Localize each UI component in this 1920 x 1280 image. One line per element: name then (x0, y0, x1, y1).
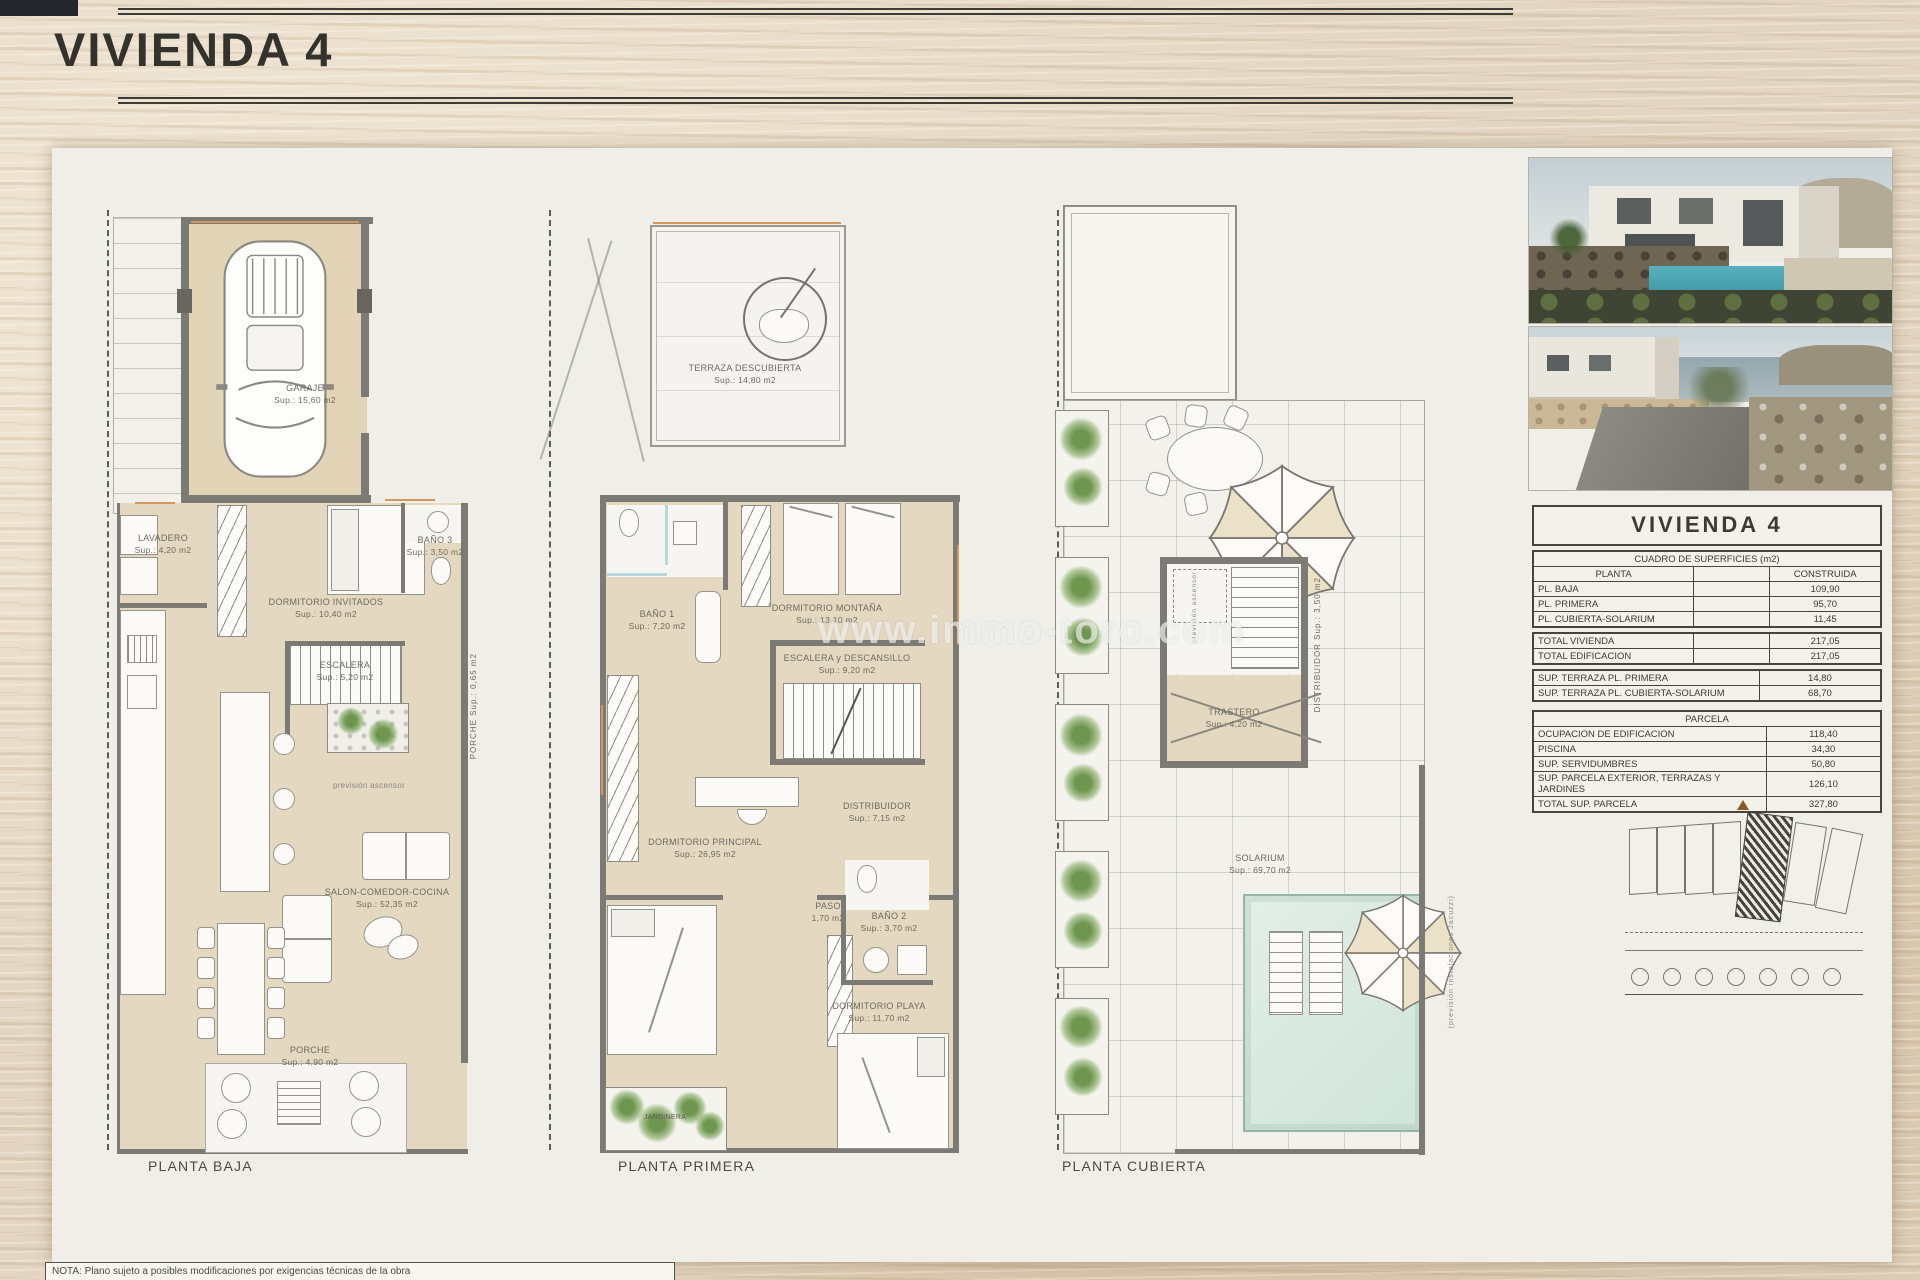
row-label: OCUPACION DE EDIFICACION (1534, 728, 1766, 741)
toilet (619, 509, 639, 537)
parcel-boundary-dashed (549, 210, 551, 1150)
plant (1059, 713, 1103, 757)
sun-lounger (1269, 931, 1303, 1015)
car-top-view (205, 233, 345, 485)
wardrobe (217, 505, 247, 637)
wall-segment (461, 503, 468, 1063)
room-area: Sup.: 11,70 m2 (832, 1013, 925, 1024)
wall-segment (770, 640, 776, 765)
dining-chair (267, 987, 285, 1009)
wall-segment (600, 495, 606, 1153)
dining-chair (197, 957, 215, 979)
staircase (783, 683, 921, 759)
shower-glass (665, 505, 668, 565)
bar-stool (273, 788, 295, 810)
bed-pillow (611, 909, 655, 937)
note-box: NOTA: Plano sujeto a posibles modificaci… (45, 1262, 675, 1280)
roof-slope-line (587, 238, 645, 462)
wall-segment (1419, 765, 1425, 1155)
roof-void-outline (1063, 205, 1237, 401)
room-area: Sup.: 10,40 m2 (269, 609, 384, 620)
table-cell-empty (1693, 597, 1769, 611)
room-area: Sup.: 3,50 m2 (1313, 577, 1322, 640)
wall-segment (845, 980, 933, 985)
site-base-line (1625, 994, 1863, 995)
wardrobe (607, 675, 639, 862)
room-area: Sup.: 7,15 m2 (843, 813, 911, 824)
site-road-line (1625, 950, 1863, 951)
tree-symbol (1727, 968, 1745, 986)
wall-segment (1175, 1149, 1425, 1154)
window-frame (385, 499, 435, 501)
plant (1063, 911, 1103, 951)
room-name: PORCHE (282, 1045, 339, 1057)
room-name: TRASTERO (1206, 707, 1263, 719)
dining-chair (267, 1017, 285, 1039)
bed-pillow (331, 509, 359, 591)
dining-chair (267, 927, 285, 949)
sun-lounger (1309, 931, 1343, 1015)
toilet (857, 865, 877, 893)
room-label-paso: PASO 1,70 m2 (812, 901, 845, 924)
table-row: PISCINA 34,30 (1534, 741, 1880, 756)
shower-tray (673, 521, 697, 545)
plot-outline (1657, 825, 1685, 895)
room-label-dormitorio-playa: DORMITORIO PLAYA Sup.: 11,70 m2 (832, 1001, 925, 1024)
room-area: Sup.: 3,50 m2 (407, 547, 464, 558)
sink-basin (427, 511, 449, 533)
wall-segment (181, 495, 371, 503)
wall-segment (117, 603, 207, 608)
plot-outline (1713, 821, 1741, 895)
table-cell-empty (1693, 582, 1769, 596)
room-label-porche-lateral: PORCHE Sup.: 0,65 m2 (469, 653, 479, 759)
driveway-ramp (113, 217, 183, 514)
wall-segment (600, 495, 960, 502)
room-area: Sup.: 69,70 m2 (1229, 865, 1291, 876)
plant (1059, 565, 1103, 609)
toilet (431, 557, 451, 585)
photo-house-window (1547, 355, 1569, 371)
table-cell-empty (1693, 567, 1769, 581)
tree-symbol (1631, 968, 1649, 986)
bar-stool (273, 733, 295, 755)
tree-symbol (1663, 968, 1681, 986)
kitchen-sink (127, 675, 157, 709)
desk (695, 777, 799, 807)
room-area: Sup.: 5,20 m2 (317, 672, 374, 683)
cooktop (127, 635, 157, 663)
room-name: BAÑO 2 (861, 911, 918, 923)
table-cell-empty (1693, 649, 1769, 663)
room-area: Sup.: 9,20 m2 (784, 665, 911, 676)
row-label: TOTAL EDIFICACION (1534, 650, 1693, 663)
laundry-sink (120, 557, 158, 595)
shower-glass (607, 573, 667, 576)
row-value: 126,10 (1766, 772, 1880, 796)
row-label: PISCINA (1534, 743, 1766, 756)
room-area: Sup.: 4,90 m2 (282, 1057, 339, 1068)
room-label-solarium: SOLARIUM Sup.: 69,70 m2 (1229, 853, 1291, 876)
table-row: SUP. SERVIDUMBRES 50,80 (1534, 756, 1880, 771)
plant (337, 707, 365, 735)
caption-planta-cubierta: PLANTA CUBIERTA (1062, 1158, 1206, 1174)
bed-pillow (917, 1037, 945, 1077)
window-frame (135, 502, 175, 504)
table-title-box: VIVIENDA 4 (1532, 505, 1882, 546)
row-label: SUP. TERRAZA PL. PRIMERA (1534, 672, 1759, 685)
room-label-trastero: TRASTERO Sup.: 4,20 m2 (1206, 707, 1263, 730)
room-area: Sup.: 52,35 m2 (325, 899, 450, 910)
table-row: TOTAL EDIFICACION 217,05 (1534, 648, 1880, 663)
room-area: Sup.: 7,20 m2 (629, 621, 686, 632)
table-row: OCUPACION DE EDIFICACION 118,40 (1534, 726, 1880, 741)
parcela-title: PARCELA (1534, 712, 1880, 726)
bar-stool (273, 843, 295, 865)
table-terrazas-box: SUP. TERRAZA PL. PRIMERA 14,80 SUP. TERR… (1532, 669, 1882, 702)
row-label: SUP. TERRAZA PL. CUBIERTA-SOLARIUM (1534, 687, 1759, 700)
room-label-bano1: BAÑO 1 Sup.: 7,20 m2 (629, 609, 686, 632)
room-label-porche: PORCHE Sup.: 4,90 m2 (282, 1045, 339, 1068)
row-value: 68,70 (1759, 686, 1880, 700)
wardrobe (827, 935, 853, 1047)
sink-basin (863, 947, 889, 973)
wall-segment (770, 759, 925, 765)
wall-segment (1160, 761, 1308, 768)
wall-segment (361, 433, 369, 499)
row-label: SUP. SERVIDUMBRES (1534, 758, 1766, 771)
table-row: PL. BAJA 109,90 (1534, 581, 1880, 596)
tree-symbol (1695, 968, 1713, 986)
table-title: VIVIENDA 4 (1534, 507, 1880, 544)
room-area: Sup.: 14,80 m2 (689, 375, 802, 386)
tree-symbol (1823, 968, 1841, 986)
plan-sheet-page: VIVIENDA 4 (0, 0, 1920, 1280)
row-value: 95,70 (1769, 597, 1880, 611)
room-name: SOLARIUM (1229, 853, 1291, 865)
plant (1059, 1005, 1103, 1049)
row-value: 34,30 (1766, 742, 1880, 756)
room-name: PASO (812, 901, 845, 913)
room-name: DISTRIBUIDOR (1313, 643, 1322, 712)
photo-white-houses (1529, 337, 1679, 407)
garage-lintel (191, 221, 359, 223)
row-label: TOTAL VIVIENDA (1534, 635, 1693, 648)
table-subtitle: CUADRO DE SUPERFICIES (m2) (1534, 552, 1880, 566)
wicker-chair (217, 1109, 247, 1139)
room-label-jardinera: JARDINERA (644, 1113, 686, 1122)
wall-segment (1160, 557, 1167, 767)
row-label: SUP. PARCELA EXTERIOR, TERRAZAS Y JARDIN… (1534, 772, 1766, 796)
wall-segment (401, 503, 405, 593)
outdoor-chair (1184, 404, 1209, 429)
table-cell-empty (1693, 634, 1769, 648)
room-area: Sup.: 15,60 m2 (274, 395, 336, 406)
dining-table (217, 923, 265, 1055)
wall-segment (603, 895, 723, 900)
bathtub (695, 591, 721, 663)
kitchen-counter (120, 610, 166, 995)
table-row: SUP. PARCELA EXTERIOR, TERRAZAS Y JARDIN… (1534, 771, 1880, 796)
plant (367, 719, 399, 749)
wall-segment (841, 895, 846, 985)
row-value: 109,90 (1769, 582, 1880, 596)
room-label-salon: SALON-COMEDOR-COCINA Sup.: 52,35 m2 (325, 887, 450, 910)
photo-building-window (1617, 198, 1651, 224)
row-value: 14,80 (1759, 671, 1880, 685)
room-area: 1,70 m2 (812, 913, 845, 924)
room-name: ESCALERA (317, 660, 374, 672)
room-label-bano2: BAÑO 2 Sup.: 3,70 m2 (861, 911, 918, 934)
room-area: Sup.: 3,70 m2 (861, 923, 918, 934)
site-road-line (1625, 932, 1863, 933)
photo-rocky-shore (1749, 397, 1893, 491)
label-prevision-ascensor: previsión ascensor (333, 781, 405, 791)
dining-chair (197, 1017, 215, 1039)
table-row: PL. CUBIERTA-SOLARIUM 11,45 (1534, 611, 1880, 626)
wicker-chair (349, 1071, 379, 1101)
photo-building-window (1679, 198, 1713, 224)
room-label-escalera-descansillo: ESCALERA y DESCANSILLO Sup.: 9,20 m2 (784, 653, 911, 676)
row-value: 118,40 (1766, 727, 1880, 741)
wall-segment (1160, 557, 1308, 564)
plant (1059, 859, 1103, 903)
wall-segment (181, 217, 189, 499)
dining-chair (267, 957, 285, 979)
plot-outline (1685, 823, 1713, 895)
tree-symbol (1759, 968, 1777, 986)
room-name: DORMITORIO INVITADOS (269, 597, 384, 609)
tree-symbol (1791, 968, 1809, 986)
wall-pillar (357, 289, 372, 313)
plot-outline (1629, 827, 1657, 895)
shower-tray (897, 945, 927, 975)
wall-pillar (177, 289, 192, 313)
caption-planta-primera: PLANTA PRIMERA (618, 1158, 755, 1174)
room-label-terraza: TERRAZA DESCUBIERTA Sup.: 14,80 m2 (689, 363, 802, 386)
table-header-row: PLANTA CONSTRUIDA (1534, 566, 1880, 581)
room-name: BAÑO 1 (629, 609, 686, 621)
window-frame (601, 705, 603, 795)
wall-segment (723, 495, 728, 590)
wardrobe (741, 505, 771, 607)
plant (637, 1103, 677, 1143)
floorplan-planta-primera: TERRAZA DESCUBIERTA Sup.: 14,80 m2 BAÑO … (545, 205, 975, 1165)
surface-area-table: VIVIENDA 4 CUADRO DE SUPERFICIES (m2) PL… (1532, 505, 1882, 817)
row-label: PL. BAJA (1534, 583, 1693, 596)
room-area: Sup.: 4,20 m2 (1206, 719, 1263, 730)
site-location-plan (1625, 800, 1865, 1020)
plot-highlight-vivienda4 (1735, 812, 1794, 923)
porch-table (277, 1081, 321, 1125)
room-name: TERRAZA DESCUBIERTA (689, 363, 802, 375)
photo-scrub (1679, 367, 1759, 407)
room-label-escalera: ESCALERA Sup.: 5,20 m2 (317, 660, 374, 683)
title-rule-top (118, 8, 1513, 15)
sofa (362, 832, 450, 880)
row-value: 217,05 (1769, 634, 1880, 648)
col-header-construida: CONSTRUIDA (1769, 567, 1880, 581)
row-label: PL. PRIMERA (1534, 598, 1693, 611)
room-label-lavadero: LAVADERO Sup.: 4,20 m2 (135, 533, 192, 556)
col-header-planta: PLANTA (1534, 568, 1693, 581)
table-cell-empty (1693, 612, 1769, 626)
photo-headland (1779, 345, 1893, 385)
floorplan-planta-baja: GARAJE Sup.: 15,60 m2 LAVADERO Sup.: 4,2… (105, 205, 485, 1165)
room-name: DORMITORIO PLAYA (832, 1001, 925, 1013)
plant (1059, 417, 1103, 461)
wall-segment (285, 641, 405, 646)
room-label-garaje: GARAJE Sup.: 15,60 m2 (274, 383, 336, 406)
row-value: 11,45 (1769, 612, 1880, 626)
table-row: PL. PRIMERA 95,70 (1534, 596, 1880, 611)
room-area: Sup.: 4,20 m2 (135, 545, 192, 556)
parcel-boundary-dashed (107, 210, 109, 1150)
row-value: 217,05 (1769, 649, 1880, 663)
room-name: LAVADERO (135, 533, 192, 545)
dining-chair (197, 987, 215, 1009)
photo-building-window (1743, 200, 1783, 246)
terrace-trim (653, 222, 841, 224)
villa-photo-render (1528, 157, 1893, 324)
table-row: SUP. TERRAZA PL. PRIMERA 14,80 (1534, 671, 1880, 685)
plant (1063, 467, 1103, 507)
table-totales-box: TOTAL VIVIENDA 217,05 TOTAL EDIFICACION … (1532, 632, 1882, 665)
room-name: BAÑO 3 (407, 535, 464, 547)
room-name: GARAJE (274, 383, 336, 395)
kitchen-island (220, 692, 270, 892)
room-name: ESCALERA y DESCANSILLO (784, 653, 911, 665)
photo-palm (1549, 218, 1589, 258)
room-name: SALON-COMEDOR-COCINA (325, 887, 450, 899)
table-row: TOTAL VIVIENDA 217,05 (1534, 634, 1880, 648)
page-title: VIVIENDA 4 (54, 22, 333, 77)
plant (1063, 1057, 1103, 1097)
table-parcela-box: PARCELA OCUPACION DE EDIFICACION 118,40 … (1532, 710, 1882, 813)
title-rule-bottom (118, 97, 1513, 104)
photo-bushes (1529, 290, 1893, 324)
watermark-text: www.immo-toro.com (818, 608, 1246, 653)
photo-house-window (1589, 355, 1611, 371)
room-name: DORMITORIO PRINCIPAL (648, 837, 762, 849)
umbrella-top-view (1343, 893, 1463, 1013)
caption-planta-baja: PLANTA BAJA (148, 1158, 253, 1174)
room-label-distribuidor: DISTRIBUIDOR Sup.: 7,15 m2 (843, 801, 911, 824)
plant (1063, 763, 1103, 803)
room-label-bano3: BAÑO 3 Sup.: 3,50 m2 (407, 535, 464, 558)
room-name: PORCHE (469, 719, 478, 759)
room-name: DISTRIBUIDOR (843, 801, 911, 813)
room-label-distribuidor-cubierta: DISTRIBUIDOR Sup.: 3,50 m2 (1313, 577, 1323, 712)
row-label: PL. CUBIERTA-SOLARIUM (1534, 613, 1693, 626)
floorplan-planta-cubierta: previsión ascensor TRASTERO Sup.: 4,20 m… (1055, 205, 1475, 1165)
table-row: SUP. TERRAZA PL. CUBIERTA-SOLARIUM 68,70 (1534, 685, 1880, 700)
corner-dark-strip (0, 0, 78, 16)
room-area: Sup.: 26,95 m2 (648, 849, 762, 860)
room-area: Sup.: 0,65 m2 (469, 653, 478, 716)
room-label-dormitorio-invitados: DORMITORIO INVITADOS Sup.: 10,40 m2 (269, 597, 384, 620)
table-plantas-box: CUADRO DE SUPERFICIES (m2) PLANTA CONSTR… (1532, 550, 1882, 628)
sofa (282, 895, 332, 983)
wicker-chair (351, 1107, 381, 1137)
dining-chair (197, 927, 215, 949)
row-value: 50,80 (1766, 757, 1880, 771)
wicker-chair (221, 1073, 251, 1103)
label-prevision-jacuzzi: (previsión instalaciones Jacuzzi) (1447, 895, 1456, 1028)
room-label-dormitorio-principal: DORMITORIO PRINCIPAL Sup.: 26,95 m2 (648, 837, 762, 860)
plant (695, 1111, 725, 1141)
north-marker (1737, 800, 1749, 810)
coastline-photo (1528, 326, 1893, 491)
